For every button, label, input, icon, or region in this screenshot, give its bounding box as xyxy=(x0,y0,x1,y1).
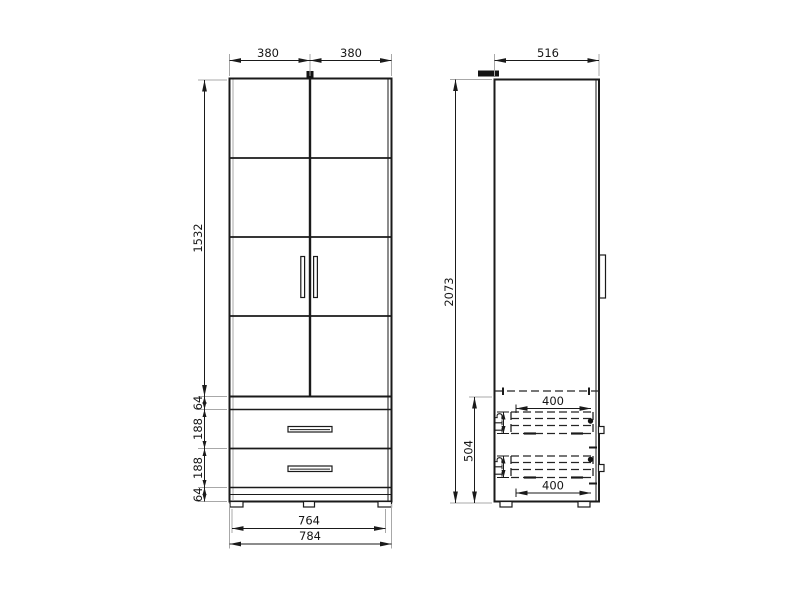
dim-label-chain-64-bottom: 64 xyxy=(191,487,205,502)
dim-label-chain-188-bottom: 188 xyxy=(191,457,205,479)
front-foot-left xyxy=(230,502,243,508)
dim-label-chain-188-top: 188 xyxy=(191,418,205,440)
front-foot-right xyxy=(378,502,392,508)
front-view: 380 380 1532 64 188 188 64 xyxy=(191,46,392,549)
dim-label-drawer1-depth: 400 xyxy=(542,394,564,408)
front-foot-center xyxy=(304,502,315,508)
dim-label-drawer2-depth: 400 xyxy=(542,479,564,493)
side-foot-back xyxy=(578,502,590,508)
wardrobe-drawing-svg: 380 380 1532 64 188 188 64 xyxy=(0,0,800,600)
dim-label-drawer1-height: 115 xyxy=(492,412,506,434)
side-view: 516 2073 504 400 115 115 xyxy=(442,46,606,507)
dim-label-drawer-section-height: 504 xyxy=(462,440,476,462)
dim-label-depth: 516 xyxy=(537,46,559,60)
dim-label-overall-width: 784 xyxy=(299,529,321,543)
left-door-handle xyxy=(301,257,305,298)
dim-label-inner-width: 764 xyxy=(298,514,320,528)
dim-label-door-section-height: 1532 xyxy=(191,223,205,252)
dim-label-drawer2-height: 115 xyxy=(492,456,506,478)
side-door-handle xyxy=(600,255,606,298)
right-door-handle xyxy=(314,257,318,298)
side-top-connector-mark xyxy=(478,71,499,77)
side-drawer2-handle xyxy=(599,465,605,472)
technical-drawing-canvas: 380 380 1532 64 188 188 64 xyxy=(0,0,800,600)
drawer1-screw-mark xyxy=(588,418,593,423)
drawer2-screw-mark xyxy=(588,457,593,462)
side-outline xyxy=(495,80,600,502)
dim-label-chain-64-top: 64 xyxy=(191,396,205,411)
dim-label-overall-height: 2073 xyxy=(442,277,456,306)
front-view-carcass xyxy=(230,71,392,502)
dim-label-door-width-left: 380 xyxy=(257,46,279,60)
dim-label-door-width-right: 380 xyxy=(340,46,362,60)
side-drawer1-handle xyxy=(599,427,605,434)
side-foot-front xyxy=(500,502,512,508)
side-view-carcass xyxy=(478,71,599,502)
